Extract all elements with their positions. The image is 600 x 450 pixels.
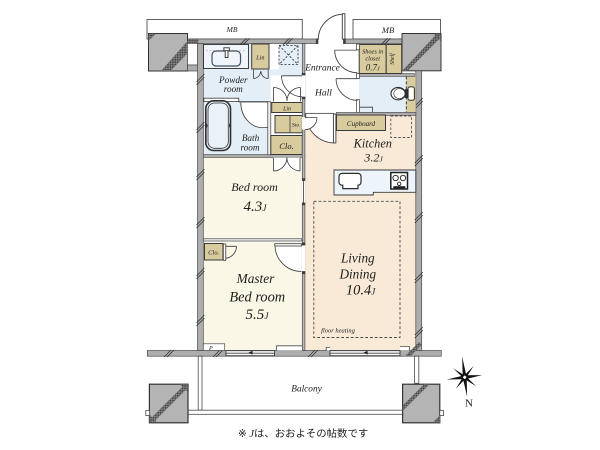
svg-text:Hall: Hall (314, 89, 332, 99)
svg-text:Entrance: Entrance (304, 64, 340, 74)
svg-text:Bed room: Bed room (231, 180, 278, 194)
svg-text:Lin: Lin (255, 55, 264, 62)
svg-text:Bed room: Bed room (229, 289, 285, 305)
svg-text:N: N (465, 398, 473, 410)
svg-text:Shelf: Shelf (389, 52, 396, 65)
svg-text:Cupboard: Cupboard (347, 120, 376, 128)
svg-text:Shoes in: Shoes in (362, 49, 383, 56)
svg-text:room: room (240, 143, 259, 153)
svg-text:MB: MB (381, 25, 394, 35)
svg-text:Kitchen: Kitchen (353, 137, 392, 151)
svg-text:Master: Master (236, 271, 275, 286)
svg-text:Clo.: Clo. (279, 141, 293, 151)
svg-text:floor heating: floor heating (321, 327, 356, 334)
svg-text:MB: MB (226, 25, 238, 34)
svg-text:Living: Living (340, 250, 375, 265)
svg-text:Sto.: Sto. (292, 122, 301, 128)
svg-text:※ Jは、おおよその帖数です: ※ Jは、おおよその帖数です (238, 427, 368, 440)
svg-text:P: P (208, 346, 213, 352)
svg-text:Balcony: Balcony (291, 385, 322, 395)
svg-text:Lin: Lin (282, 106, 291, 112)
svg-text:Dining: Dining (338, 266, 376, 281)
svg-text:Bath: Bath (242, 133, 260, 143)
svg-text:Clo.: Clo. (208, 250, 219, 257)
svg-text:closet: closet (365, 56, 380, 63)
svg-text:room: room (224, 84, 243, 94)
